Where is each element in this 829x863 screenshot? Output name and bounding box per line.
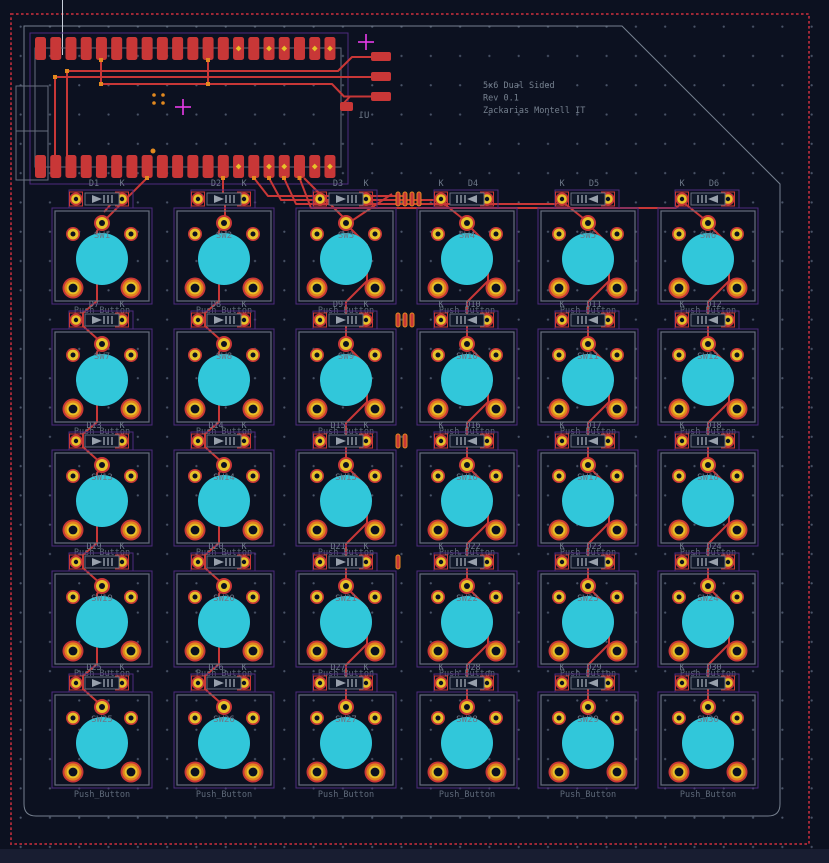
diode-cathode-label[interactable]: K xyxy=(241,663,247,673)
title-block-line[interactable]: 5x6 Dual Sided xyxy=(483,81,555,91)
diode-pad-hole xyxy=(242,560,246,564)
switch-reference-label[interactable]: SW15 xyxy=(335,473,357,483)
header-pad[interactable] xyxy=(142,37,153,60)
switch-mount-hole xyxy=(127,405,136,414)
header-pad[interactable] xyxy=(248,37,259,60)
origin-cross xyxy=(358,34,374,50)
diode-cathode-label[interactable]: K xyxy=(363,542,369,552)
switch-reference-label[interactable]: SW8 xyxy=(216,352,232,362)
diode-cathode-label[interactable]: K xyxy=(559,179,565,189)
header-pad[interactable] xyxy=(203,155,214,178)
fiducial-dot xyxy=(161,101,165,105)
diode-reference-label[interactable]: D11 xyxy=(586,300,601,310)
switch-pad-hole xyxy=(343,583,349,589)
switch-reference-label[interactable]: SW7 xyxy=(94,352,110,362)
diode-pad-hole xyxy=(74,439,78,443)
header-pad[interactable] xyxy=(157,37,168,60)
switch-pad-hole xyxy=(494,353,499,358)
diode-pad-hole xyxy=(120,681,124,685)
switch-reference-label[interactable]: SW21 xyxy=(335,594,357,604)
header-pad[interactable] xyxy=(218,37,229,60)
switch-value-label[interactable]: Push_Button xyxy=(560,790,616,800)
switch-footprint[interactable]: SW26Push_Button xyxy=(174,692,274,800)
diode-reference-label[interactable]: D26 xyxy=(208,663,223,673)
diode-cathode-label[interactable]: K xyxy=(119,179,125,189)
diode-reference-label[interactable]: D2 xyxy=(211,179,221,189)
switch-pad-hole xyxy=(315,474,320,479)
switch-pad-hole xyxy=(315,716,320,721)
diode-pad-hole xyxy=(485,560,489,564)
switch-mount-hole xyxy=(371,405,380,414)
via-group[interactable] xyxy=(396,434,407,448)
diode-cathode-label[interactable]: K xyxy=(119,421,125,431)
diode-pad-hole xyxy=(606,197,610,201)
diode-pad-hole xyxy=(120,560,124,564)
switch-pad-hole xyxy=(615,595,620,600)
switch-pad-hole xyxy=(251,474,256,479)
diode-cathode-label[interactable]: K xyxy=(559,663,565,673)
switch-footprint[interactable]: SW27Push_Button xyxy=(296,692,396,800)
diode-reference-label[interactable]: D10 xyxy=(465,300,480,310)
via-pair[interactable] xyxy=(403,434,407,448)
trace-junction xyxy=(206,82,210,86)
switch-mount-hole xyxy=(675,526,684,535)
switch-reference-label[interactable]: SW26 xyxy=(213,715,235,725)
switch-reference-label[interactable]: SW25 xyxy=(91,715,113,725)
diode-cathode-label[interactable]: K xyxy=(438,542,444,552)
diode-pad-hole xyxy=(364,560,368,564)
switch-mount-hole xyxy=(371,526,380,535)
diode-cathode-label[interactable]: K xyxy=(559,421,565,431)
via-pair[interactable] xyxy=(396,555,400,569)
diode-reference-label[interactable]: D4 xyxy=(468,179,478,189)
diode-pad-hole xyxy=(242,681,246,685)
diode-reference-label[interactable]: D5 xyxy=(589,179,599,189)
switch-mount-hole xyxy=(733,284,742,293)
switch-pad-hole xyxy=(705,704,711,710)
diode-reference-label[interactable]: D25 xyxy=(86,663,101,673)
diode-reference-label[interactable]: D24 xyxy=(706,542,721,552)
diode-cathode-label[interactable]: K xyxy=(119,300,125,310)
switch-value-label[interactable]: Push_Button xyxy=(74,790,130,800)
switch-pad-hole xyxy=(373,232,378,237)
header-smd-pad[interactable] xyxy=(340,102,353,111)
diode-pad-hole xyxy=(560,681,564,685)
diode-cathode-label[interactable]: K xyxy=(559,542,565,552)
diode-cathode-label[interactable]: K xyxy=(679,300,685,310)
diode-cathode-label[interactable]: K xyxy=(438,421,444,431)
header-smd-pad[interactable] xyxy=(371,72,391,81)
header-pad[interactable] xyxy=(126,37,137,60)
diode-reference-label[interactable]: D7 xyxy=(89,300,99,310)
switch-pad-hole xyxy=(735,474,740,479)
diode-footprint[interactable]: KD5 xyxy=(555,179,619,208)
switch-footprint[interactable]: SW9Push_Button xyxy=(296,329,396,437)
diode-pad-hole xyxy=(439,439,443,443)
switch-mount-hole xyxy=(675,405,684,414)
switch-pad-hole xyxy=(705,462,711,468)
switch-reference-label[interactable]: SW10 xyxy=(456,352,478,362)
switch-mount-hole xyxy=(127,647,136,656)
switch-pad-hole xyxy=(129,353,134,358)
via-pair[interactable] xyxy=(410,192,414,206)
switch-pad-hole xyxy=(129,474,134,479)
diode-reference-label[interactable]: D20 xyxy=(208,542,223,552)
switch-value-label[interactable]: Push_Button xyxy=(318,790,374,800)
diode-pad-hole xyxy=(196,560,200,564)
switch-pad-hole xyxy=(677,474,682,479)
diode-footprint[interactable]: KD6 xyxy=(675,179,739,208)
diode-pad-hole xyxy=(74,318,78,322)
switch-mount-hole xyxy=(191,284,200,293)
switch-footprint[interactable]: SW7Push_Button xyxy=(52,329,152,437)
header-pad[interactable] xyxy=(50,37,61,60)
switch-pad-hole xyxy=(585,341,591,347)
trace-junction xyxy=(65,69,69,73)
switch-pad-hole xyxy=(193,232,198,237)
diode-cathode-label[interactable]: K xyxy=(559,300,565,310)
via-group[interactable] xyxy=(396,313,414,327)
via-pair[interactable] xyxy=(396,434,400,448)
switch-footprint[interactable]: SW2Push_Button xyxy=(174,208,274,316)
switch-mount-hole xyxy=(313,647,322,656)
switch-pad-hole xyxy=(71,716,76,721)
switch-pad-hole xyxy=(705,220,711,226)
switch-pad-hole xyxy=(99,220,105,226)
diode-reference-label[interactable]: D18 xyxy=(706,421,721,431)
diode-reference-label[interactable]: D13 xyxy=(86,421,101,431)
diode-pad-hole xyxy=(485,681,489,685)
diode-pad-hole xyxy=(242,439,246,443)
switch-mount-hole xyxy=(249,647,258,656)
switch-pad-hole xyxy=(464,220,470,226)
switch-mount-hole xyxy=(313,405,322,414)
switch-pad-hole xyxy=(677,353,682,358)
switch-mount-hole xyxy=(555,526,564,535)
switch-pad-hole xyxy=(343,704,349,710)
diode-footprint[interactable]: D1K xyxy=(69,179,133,208)
switch-mount-hole xyxy=(69,526,78,535)
switch-mount-hole xyxy=(555,647,564,656)
header-pad[interactable] xyxy=(65,37,76,60)
switch-mount-hole xyxy=(191,768,200,777)
diode-reference-label[interactable]: D30 xyxy=(706,663,721,673)
trace-junction xyxy=(267,176,271,180)
header-pad[interactable] xyxy=(126,155,137,178)
diode-reference-label[interactable]: D16 xyxy=(465,421,480,431)
connector-footprint-u1[interactable]: U1 xyxy=(16,33,391,184)
switch-reference-label[interactable]: SW17 xyxy=(577,473,599,483)
diode-pad-hole xyxy=(726,197,730,201)
switch-pad-hole xyxy=(677,595,682,600)
header-reference-label[interactable]: U1 xyxy=(359,111,370,121)
diode-reference-label[interactable]: D27 xyxy=(330,663,345,673)
switch-mount-hole xyxy=(191,647,200,656)
switch-mount-hole xyxy=(434,284,443,293)
header-pad[interactable] xyxy=(81,37,92,60)
header-pad[interactable] xyxy=(172,37,183,60)
switch-reference-label[interactable]: SW11 xyxy=(577,352,599,362)
switch-pad-hole xyxy=(251,716,256,721)
diode-cathode-label[interactable]: K xyxy=(679,663,685,673)
switch-reference-label[interactable]: SW13 xyxy=(91,473,113,483)
switch-pad-hole xyxy=(71,232,76,237)
switch-mount-hole xyxy=(313,284,322,293)
diode-pad-hole xyxy=(196,439,200,443)
copper-traces[interactable] xyxy=(53,57,729,706)
switch-footprint[interactable]: SW29Push_Button xyxy=(538,692,638,800)
switch-pad-hole xyxy=(315,232,320,237)
via-pair[interactable] xyxy=(410,313,414,327)
switch-pad-hole xyxy=(343,341,349,347)
switch-reference-label[interactable]: SW6 xyxy=(700,231,716,241)
switch-reference-label[interactable]: SW2 xyxy=(216,231,232,241)
switch-reference-label[interactable]: SW29 xyxy=(577,715,599,725)
header-pad[interactable] xyxy=(218,155,229,178)
header-pad[interactable] xyxy=(111,155,122,178)
switch-reference-label[interactable]: SW24 xyxy=(697,594,719,604)
switch-reference-label[interactable]: SW30 xyxy=(697,715,719,725)
diode-pad-hole xyxy=(680,439,684,443)
switch-pad-hole xyxy=(343,462,349,468)
switch-reference-label[interactable]: SW16 xyxy=(456,473,478,483)
header-pad[interactable] xyxy=(294,155,305,178)
switch-reference-label[interactable]: SW4 xyxy=(459,231,475,241)
switch-pad-hole xyxy=(436,595,441,600)
diode-pad-hole xyxy=(196,318,200,322)
switch-pad-hole xyxy=(494,232,499,237)
switch-pad-hole xyxy=(585,462,591,468)
diode-pad-hole xyxy=(680,560,684,564)
diode-footprint[interactable]: D3K xyxy=(313,179,377,208)
switch-reference-label[interactable]: SW19 xyxy=(91,594,113,604)
diode-cathode-label[interactable]: K xyxy=(438,663,444,673)
board-edge-cuts xyxy=(24,26,780,816)
diode-cathode-label[interactable]: K xyxy=(119,663,125,673)
diode-reference-label[interactable]: D8 xyxy=(211,300,221,310)
switch-pad-hole xyxy=(343,220,349,226)
diode-reference-label[interactable]: D19 xyxy=(86,542,101,552)
switch-reference-label[interactable]: SW5 xyxy=(580,231,596,241)
diode-pad-hole xyxy=(318,560,322,564)
switch-mount-hole xyxy=(249,768,258,777)
switch-footprint[interactable]: SW8Push_Button xyxy=(174,329,274,437)
diode-pad-hole xyxy=(318,318,322,322)
header-pad[interactable] xyxy=(81,155,92,178)
header-pad[interactable] xyxy=(248,155,259,178)
diode-pad-hole xyxy=(680,318,684,322)
header-pad[interactable] xyxy=(96,37,107,60)
switch-pad-hole xyxy=(99,583,105,589)
switch-pad-hole xyxy=(677,716,682,721)
switch-footprint[interactable]: SW30Push_Button xyxy=(658,692,758,800)
diode-cathode-label[interactable]: K xyxy=(241,421,247,431)
switch-pad-hole xyxy=(464,341,470,347)
via-group[interactable] xyxy=(396,555,400,569)
header-smd-pad[interactable] xyxy=(371,92,391,101)
diode-cathode-label[interactable]: K xyxy=(363,300,369,310)
header-pad[interactable] xyxy=(96,155,107,178)
switch-mount-hole xyxy=(492,768,501,777)
title-block-line[interactable]: Rev 0.1 xyxy=(483,94,519,104)
header-side-box xyxy=(16,86,48,131)
trace-junction xyxy=(298,176,302,180)
via-pair[interactable] xyxy=(403,313,407,327)
switch-reference-label[interactable]: SW28 xyxy=(456,715,478,725)
trace-junction xyxy=(252,176,256,180)
title-block-line[interactable]: Zackarias Montell IT xyxy=(483,106,585,116)
diode-reference-label[interactable]: D1 xyxy=(89,179,99,189)
diode-pad-hole xyxy=(364,439,368,443)
switch-mount-hole xyxy=(434,768,443,777)
diode-pad-hole xyxy=(680,681,684,685)
diode-cathode-label[interactable]: K xyxy=(119,542,125,552)
diode-pad-hole xyxy=(560,439,564,443)
diode-reference-label[interactable]: D15 xyxy=(330,421,345,431)
switch-pad-hole xyxy=(464,462,470,468)
diode-reference-label[interactable]: D6 xyxy=(709,179,719,189)
pcb-editor-canvas: U1D1KSW1Push_ButtonD2KSW2Push_ButtonD3KS… xyxy=(0,0,829,863)
via-pair[interactable] xyxy=(396,313,400,327)
switch-value-label[interactable]: Push_Button xyxy=(196,790,252,800)
switch-reference-label[interactable]: SW12 xyxy=(697,352,719,362)
switch-pad-hole xyxy=(494,716,499,721)
via-pair[interactable] xyxy=(403,192,407,206)
diode-cathode-label[interactable]: K xyxy=(438,179,444,189)
diode-pad-hole xyxy=(560,197,564,201)
switch-value-label[interactable]: Push_Button xyxy=(680,790,736,800)
via-pair[interactable] xyxy=(396,192,400,206)
header-pad[interactable] xyxy=(187,155,198,178)
switch-value-label[interactable]: Push_Button xyxy=(439,790,495,800)
switch-mount-hole xyxy=(434,526,443,535)
switch-pad-hole xyxy=(494,595,499,600)
fiducial-dot xyxy=(152,101,156,105)
switch-footprint[interactable]: SW20Push_Button xyxy=(174,571,274,679)
switch-mount-hole xyxy=(733,647,742,656)
switch-reference-label[interactable]: SW20 xyxy=(213,594,235,604)
switch-footprint[interactable]: SW3Push_Button xyxy=(296,208,396,316)
switch-reference-label[interactable]: SW18 xyxy=(697,473,719,483)
header-pad[interactable] xyxy=(111,37,122,60)
diode-cathode-label[interactable]: K xyxy=(679,421,685,431)
diode-cathode-label[interactable]: K xyxy=(438,300,444,310)
diode-cathode-label[interactable]: K xyxy=(679,179,685,189)
switch-footprint[interactable]: SW13Push_Button xyxy=(52,450,152,558)
diode-reference-label[interactable]: D14 xyxy=(208,421,223,431)
header-pad[interactable] xyxy=(203,37,214,60)
copper-trace[interactable] xyxy=(101,84,373,97)
switch-pad-hole xyxy=(557,595,562,600)
diode-reference-label[interactable]: D3 xyxy=(333,179,343,189)
switch-reference-label[interactable]: SW27 xyxy=(335,715,357,725)
header-pad[interactable] xyxy=(157,155,168,178)
switch-footprint[interactable]: SW14Push_Button xyxy=(174,450,274,558)
diode-reference-label[interactable]: D23 xyxy=(586,542,601,552)
diode-pad-hole xyxy=(439,681,443,685)
diode-pad-hole xyxy=(439,197,443,201)
diode-reference-label[interactable]: D9 xyxy=(333,300,343,310)
switch-footprint[interactable]: SW21Push_Button xyxy=(296,571,396,679)
switch-reference-label[interactable]: SW14 xyxy=(213,473,235,483)
diode-reference-label[interactable]: D22 xyxy=(465,542,480,552)
diode-cathode-label[interactable]: K xyxy=(241,300,247,310)
diode-pad-hole xyxy=(364,318,368,322)
switch-mount-hole xyxy=(371,284,380,293)
switch-reference-label[interactable]: SW22 xyxy=(456,594,478,604)
header-pad[interactable] xyxy=(187,37,198,60)
switch-pad-hole xyxy=(71,595,76,600)
diode-pad-hole xyxy=(726,318,730,322)
switch-reference-label[interactable]: SW3 xyxy=(338,231,354,241)
header-pad[interactable] xyxy=(172,155,183,178)
trace-junction xyxy=(99,58,103,62)
diode-reference-label[interactable]: D29 xyxy=(586,663,601,673)
switch-pad-hole xyxy=(373,353,378,358)
diode-reference-label[interactable]: D21 xyxy=(330,542,345,552)
fiducial-dot xyxy=(152,93,156,97)
diode-pad-hole xyxy=(560,318,564,322)
switch-mount-hole xyxy=(371,768,380,777)
header-pad[interactable] xyxy=(294,37,305,60)
diode-pad-hole xyxy=(680,197,684,201)
diode-cathode-label[interactable]: K xyxy=(679,542,685,552)
diode-reference-label[interactable]: D17 xyxy=(586,421,601,431)
header-pad[interactable] xyxy=(35,37,46,60)
switch-footprint[interactable]: SW28Push_Button xyxy=(417,692,517,800)
origin-cross xyxy=(175,99,191,115)
switch-mount-hole xyxy=(249,526,258,535)
switch-pad-hole xyxy=(315,595,320,600)
diode-cathode-label[interactable]: K xyxy=(363,179,369,189)
diode-reference-label[interactable]: D12 xyxy=(706,300,721,310)
switch-footprint[interactable]: SW15Push_Button xyxy=(296,450,396,558)
header-pad[interactable] xyxy=(35,155,46,178)
header-pad[interactable] xyxy=(142,155,153,178)
switch-mount-hole xyxy=(733,768,742,777)
switch-mount-hole xyxy=(434,647,443,656)
diode-cathode-label[interactable]: K xyxy=(241,542,247,552)
diode-pad-hole xyxy=(318,197,322,201)
switch-reference-label[interactable]: SW23 xyxy=(577,594,599,604)
switch-pad-hole xyxy=(615,716,620,721)
switch-footprint[interactable]: SW1Push_Button xyxy=(52,208,152,316)
switch-mount-hole xyxy=(733,526,742,535)
switch-mount-hole xyxy=(434,405,443,414)
switch-pad-hole xyxy=(315,353,320,358)
diode-footprint[interactable]: KD4 xyxy=(434,179,498,208)
switch-reference-label[interactable]: SW1 xyxy=(94,231,110,241)
trace-junction xyxy=(145,176,149,180)
diode-reference-label[interactable]: D28 xyxy=(465,663,480,673)
switch-footprint[interactable]: SW25Push_Button xyxy=(52,692,152,800)
switch-mount-hole xyxy=(127,526,136,535)
switch-pad-hole xyxy=(193,595,198,600)
diode-cathode-label[interactable]: K xyxy=(363,663,369,673)
diode-cathode-label[interactable]: K xyxy=(241,179,247,189)
switch-mount-hole xyxy=(555,284,564,293)
diode-pad-hole xyxy=(318,681,322,685)
switch-pad-hole xyxy=(557,474,562,479)
via-pair[interactable] xyxy=(417,192,421,206)
via[interactable] xyxy=(151,149,156,154)
switch-mount-hole xyxy=(127,768,136,777)
diode-cathode-label[interactable]: K xyxy=(363,421,369,431)
diode-pad-hole xyxy=(606,681,610,685)
switch-footprint[interactable]: SW19Push_Button xyxy=(52,571,152,679)
switch-reference-label[interactable]: SW9 xyxy=(338,352,354,362)
header-smd-pad[interactable] xyxy=(371,52,391,61)
